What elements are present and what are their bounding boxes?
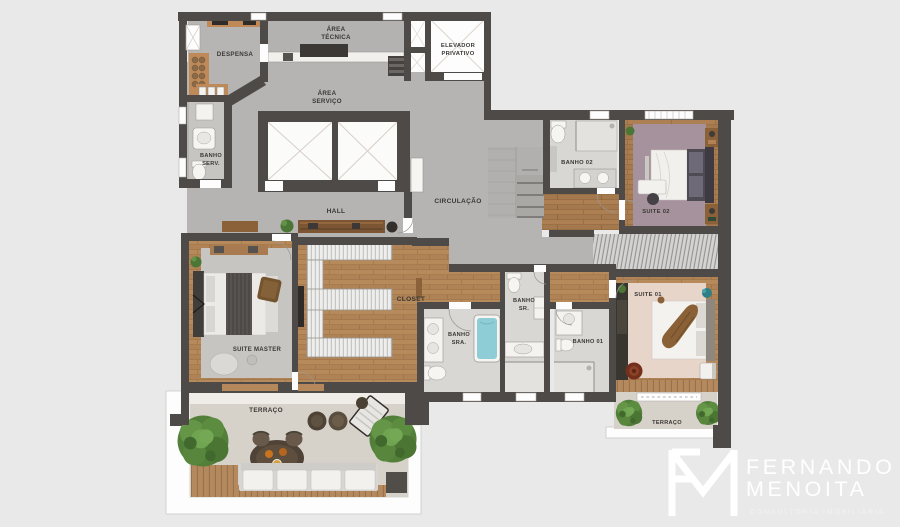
svg-text:ÁREA: ÁREA (327, 26, 346, 33)
svg-text:SERV.: SERV. (202, 161, 220, 167)
svg-text:FERNANDO: FERNANDO (746, 455, 895, 479)
svg-text:SUITE MASTER: SUITE MASTER (233, 347, 282, 353)
svg-text:MENOITA: MENOITA (746, 477, 868, 501)
svg-text:PRIVATIVO: PRIVATIVO (441, 51, 474, 57)
svg-text:SUITE 02: SUITE 02 (642, 209, 670, 215)
svg-text:TÉCNICA: TÉCNICA (321, 33, 351, 41)
svg-text:CLOSET: CLOSET (397, 296, 426, 303)
svg-text:CIRCULAÇÃO: CIRCULAÇÃO (434, 196, 481, 205)
svg-text:SRA.: SRA. (452, 340, 467, 346)
svg-text:DESPENSA: DESPENSA (217, 51, 254, 58)
svg-text:BANHO: BANHO (448, 332, 470, 338)
svg-text:BANHO: BANHO (513, 298, 535, 304)
svg-text:SUITE 01: SUITE 01 (634, 292, 662, 298)
svg-text:TERRAÇO: TERRAÇO (652, 420, 682, 426)
svg-text:ÁREA: ÁREA (318, 90, 337, 97)
svg-text:SERVIÇO: SERVIÇO (312, 98, 342, 105)
svg-text:TERRAÇO: TERRAÇO (249, 407, 283, 414)
svg-text:BANHO: BANHO (200, 153, 222, 159)
svg-text:BANHO 01: BANHO 01 (573, 339, 604, 345)
svg-text:BANHO 02: BANHO 02 (561, 160, 593, 166)
svg-text:SR.: SR. (519, 306, 529, 312)
svg-text:HALL: HALL (327, 208, 346, 215)
svg-text:CONSULTORIA IMOBILIÁRIA: CONSULTORIA IMOBILIÁRIA (750, 507, 885, 516)
svg-text:ELEVADOR: ELEVADOR (441, 43, 476, 49)
